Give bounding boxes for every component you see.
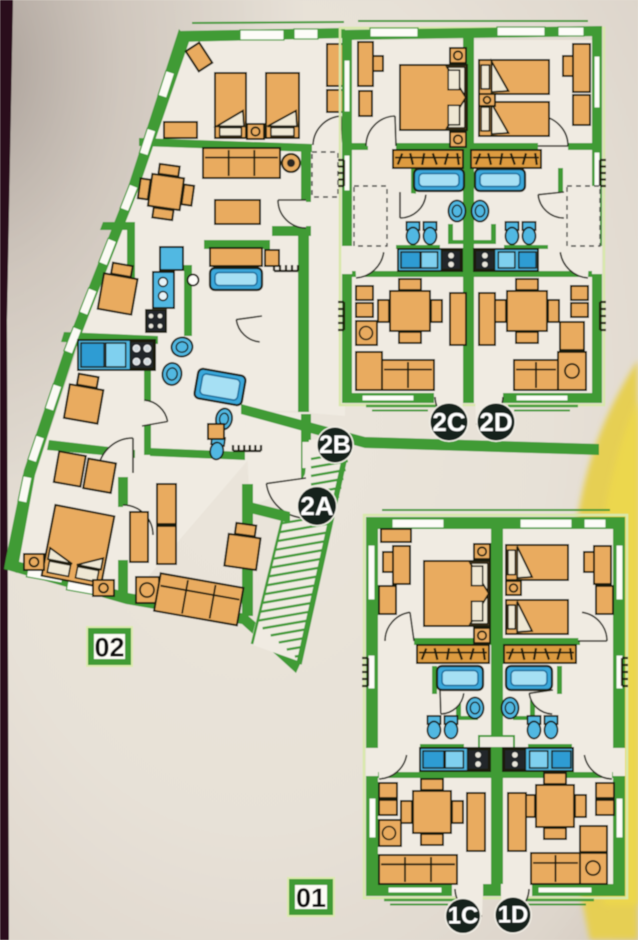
- svg-text:2D: 2D: [479, 407, 512, 437]
- svg-text:2A: 2A: [300, 491, 333, 521]
- svg-text:2B: 2B: [319, 431, 351, 459]
- svg-text:2C: 2C: [432, 407, 465, 437]
- svg-text:02: 02: [94, 633, 124, 663]
- svg-text:1D: 1D: [498, 902, 529, 929]
- svg-text:1C: 1C: [448, 903, 479, 930]
- svg-text:01: 01: [296, 883, 326, 913]
